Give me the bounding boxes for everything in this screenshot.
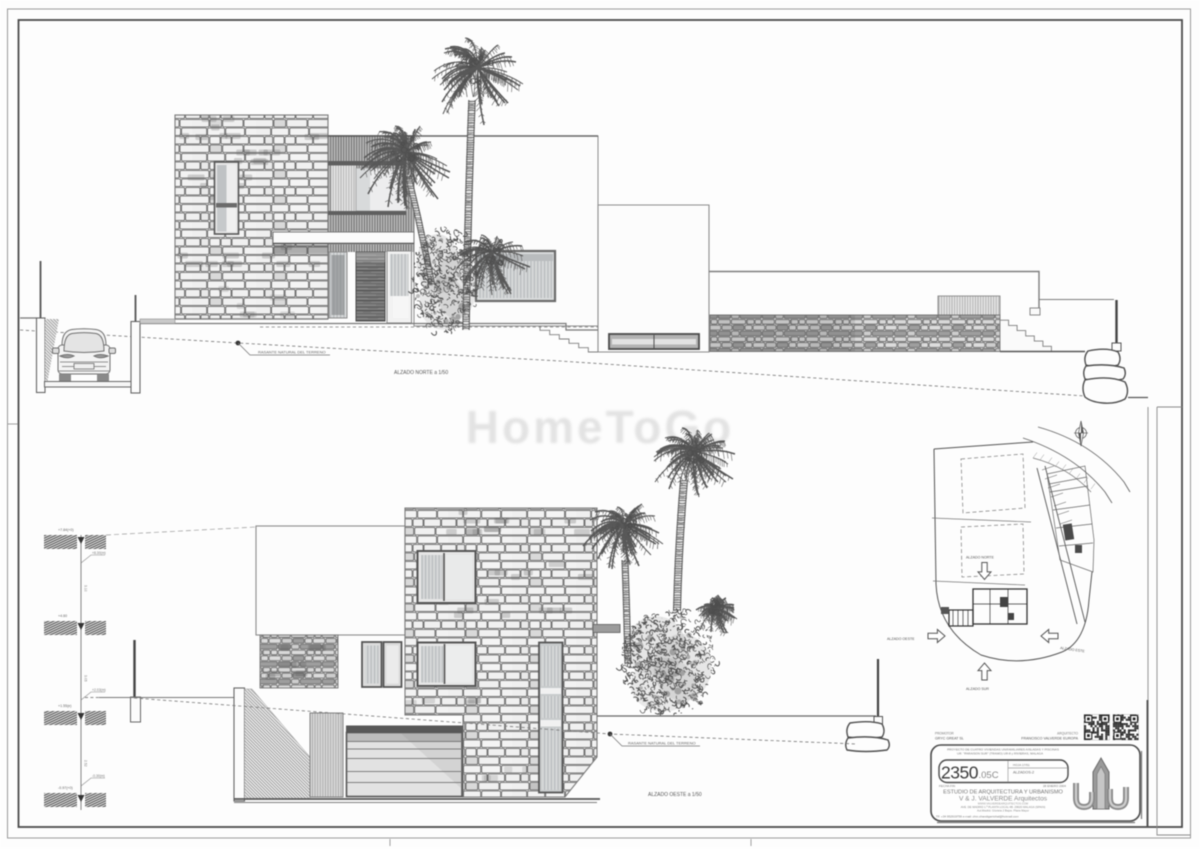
- svg-text:PROMOTOR: PROMOTOR: [935, 732, 954, 736]
- svg-text:ALZADO NORTE: ALZADO NORTE: [966, 556, 994, 560]
- svg-text:GRYC GREAT SL: GRYC GREAT SL: [935, 737, 964, 741]
- svg-text:-0.97(+0): -0.97(+0): [58, 786, 73, 790]
- svg-text:ARQUITECTO: ARQUITECTO: [1057, 732, 1078, 736]
- svg-text:RASANTE NATURAL DEL TERRENO: RASANTE NATURAL DEL TERRENO: [258, 350, 326, 355]
- svg-text:HOJA 17/51: HOJA 17/51: [1013, 763, 1030, 767]
- svg-text:FECHA FIN: FECHA FIN: [939, 784, 955, 788]
- svg-text:Aut.Madrid. Glorieta 2 Bajos.: Aut.Madrid. Glorieta 2 Bajos. Plaza Mayo…: [977, 809, 1029, 813]
- svg-text:ALZADOS-2: ALZADOS-2: [1013, 771, 1034, 775]
- svg-text:ALZADO NORTE a 1/50: ALZADO NORTE a 1/50: [394, 370, 448, 376]
- svg-text:+2.03(m): +2.03(m): [92, 688, 106, 692]
- svg-text:RASANTE NATURAL DEL TERRENO: RASANTE NATURAL DEL TERRENO: [628, 741, 696, 746]
- svg-text:.05C: .05C: [979, 770, 999, 781]
- svg-text:ALZADO OESTE: ALZADO OESTE: [887, 637, 915, 641]
- svg-text:TF. +34 952919756 e-mail: ch: TF. +34 952919756 e-mail: chm.chandigarr…: [936, 815, 1019, 819]
- svg-text:UR. "PARAISON SUR" (TRAMO) UR-: UR. "PARAISON SUR" (TRAMO) UR-8 y RIVIER…: [957, 752, 1044, 756]
- svg-text:-0.30(m): -0.30(m): [92, 774, 105, 778]
- svg-text:ALZADO OESTE a 1/50: ALZADO OESTE a 1/50: [648, 792, 702, 798]
- svg-text:28 ENERO 2004: 28 ENERO 2004: [1043, 784, 1066, 788]
- svg-text:FRANCISCO VALVERDE EUROPA: FRANCISCO VALVERDE EUROPA: [1021, 737, 1078, 741]
- svg-text:+7.84(+0): +7.84(+0): [58, 528, 74, 532]
- svg-text:+4.60: +4.60: [58, 614, 67, 618]
- svg-text:+1.55(e): +1.55(e): [58, 704, 72, 708]
- svg-text:2350: 2350: [941, 763, 979, 783]
- svg-text:3.05: 3.05: [84, 675, 88, 682]
- svg-text:3.10: 3.10: [84, 585, 88, 592]
- svg-text:ALZADO SUR: ALZADO SUR: [966, 687, 989, 691]
- svg-text:2.52: 2.52: [84, 760, 88, 767]
- svg-text:+8.30(m): +8.30(m): [92, 551, 106, 555]
